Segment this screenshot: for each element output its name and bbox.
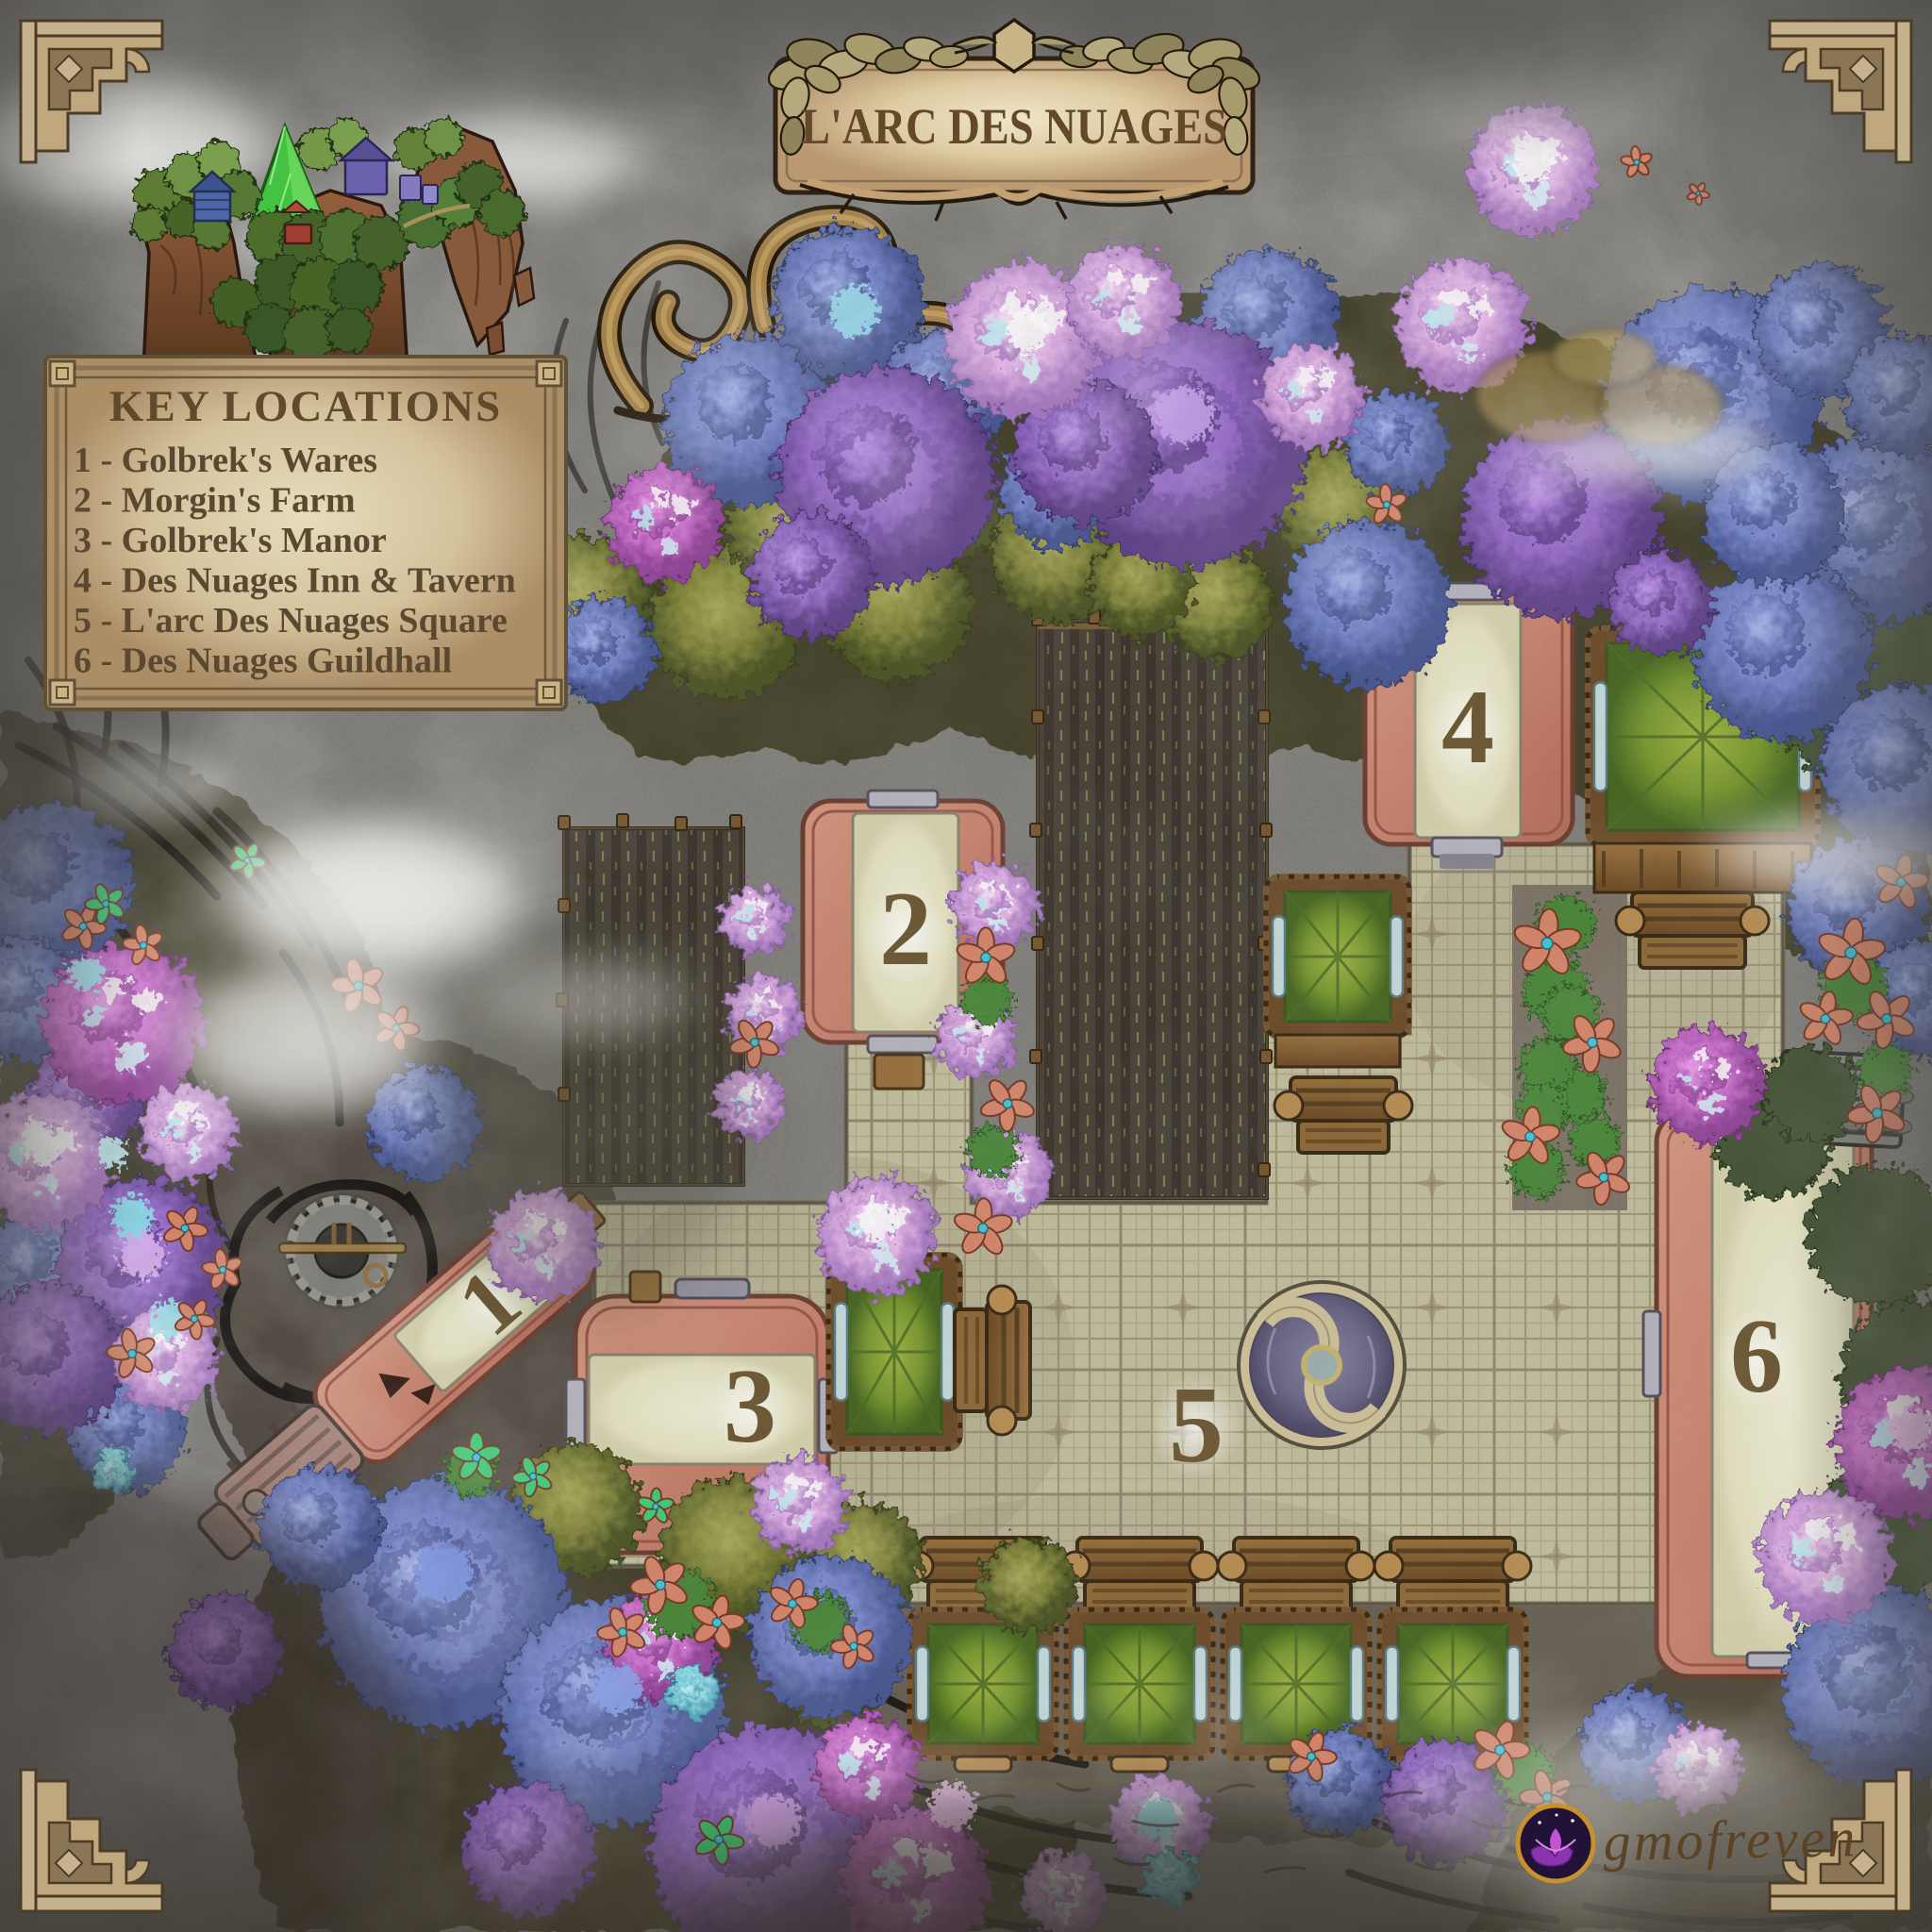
svg-text:1 - Golbrek's Wares: 1 - Golbrek's Wares [74, 441, 377, 480]
svg-text:6 - Des Nuages Guildhall: 6 - Des Nuages Guildhall [74, 641, 452, 681]
svg-text:4 - Des Nuages Inn & Tavern: 4 - Des Nuages Inn & Tavern [74, 561, 516, 601]
svg-text:L'ARC DES NUAGES: L'ARC DES NUAGES [801, 98, 1227, 155]
svg-text:2 - Morgin's Farm: 2 - Morgin's Farm [74, 481, 356, 521]
svg-text:KEY LOCATIONS: KEY LOCATIONS [109, 382, 502, 431]
svg-text:5 - L'arc Des Nuages Square: 5 - L'arc Des Nuages Square [74, 601, 508, 641]
svg-text:gmofreven: gmofreven [1603, 1807, 1858, 1873]
svg-text:3 - Golbrek's Manor: 3 - Golbrek's Manor [74, 521, 387, 560]
